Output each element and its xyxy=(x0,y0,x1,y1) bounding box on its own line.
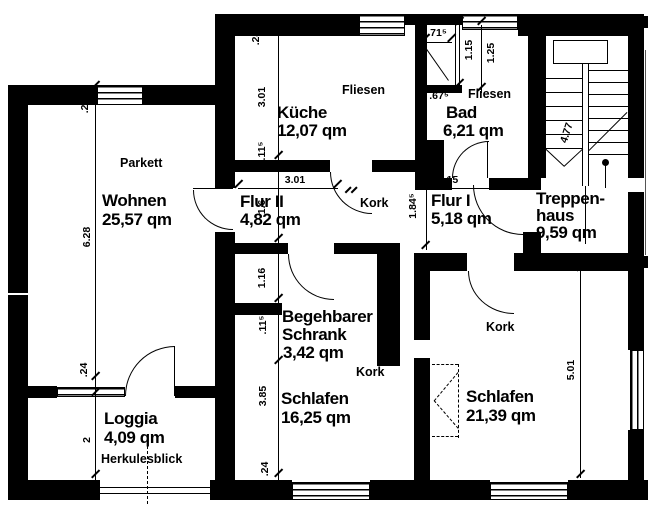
floor-label-schlafen-rechts: Kork xyxy=(486,321,514,334)
wall xyxy=(405,14,462,25)
dim-label-kueche-height: 3.01 xyxy=(257,87,268,107)
wall xyxy=(518,14,630,36)
room-label-treppenhaus-1: Treppen- xyxy=(536,190,605,207)
dim-label-wohnen-height: 6.28 xyxy=(82,227,93,247)
floor-label-flur2: Kork xyxy=(360,197,388,210)
stair-tread xyxy=(541,106,583,107)
area-label-schlafen-rechts: 21,39 qm xyxy=(466,407,536,424)
door-arc-schrank xyxy=(288,254,334,300)
stair-direction-line xyxy=(545,148,565,167)
note-label-herkulesblick: Herkulesblick xyxy=(101,453,182,466)
dashed-detail xyxy=(432,364,458,365)
room-label-schlafen-links: Schlafen xyxy=(281,390,349,407)
wall xyxy=(414,253,467,271)
dim-label-kueche-wall-top: .24 xyxy=(251,31,262,46)
wall xyxy=(235,303,282,315)
room-label-wohnen: Wohnen xyxy=(102,192,166,209)
wall xyxy=(28,386,57,398)
wall xyxy=(215,36,235,85)
dim-label-bad-vorwand: .67⁵ xyxy=(429,91,449,102)
dim-label-flur1-height: 1.84⁵ xyxy=(408,193,419,218)
wall xyxy=(235,243,288,254)
dim-line xyxy=(580,271,581,478)
floor-label-bad: Fliesen xyxy=(468,88,511,101)
floor-plan-canvas: Parkett Wohnen 25,57 qm Küche 12,07 qm F… xyxy=(0,0,648,506)
dashed-detail xyxy=(434,400,459,429)
wall xyxy=(414,358,430,480)
window xyxy=(292,482,370,500)
wall xyxy=(8,480,100,500)
stair-rail-line xyxy=(605,163,606,188)
wall xyxy=(414,271,430,340)
dim-label-schlafen-rechts-height: 5.01 xyxy=(566,360,577,380)
door-arc-wohnen-flur2 xyxy=(193,190,233,230)
window xyxy=(630,350,644,430)
stair-tread xyxy=(589,82,628,83)
wall xyxy=(235,160,330,172)
wall xyxy=(370,480,490,500)
niche-slash xyxy=(425,48,448,81)
floor-label-kueche: Fliesen xyxy=(342,84,385,97)
wall-joint xyxy=(8,293,28,295)
window xyxy=(97,85,143,105)
stair-direction-line xyxy=(564,148,584,167)
area-label-schrank: 3,42 qm xyxy=(283,344,344,361)
door-leaf xyxy=(487,141,488,178)
facade-fragment xyxy=(642,256,648,268)
stair-tread xyxy=(541,78,583,79)
wall xyxy=(514,253,630,271)
stair-tread xyxy=(589,154,628,155)
window xyxy=(490,482,568,500)
wall xyxy=(377,254,400,366)
stair-tread xyxy=(541,92,583,93)
room-label-kueche: Küche xyxy=(277,104,327,121)
room-label-schlafen-rechts: Schlafen xyxy=(466,388,534,405)
facade-line xyxy=(645,50,646,255)
loggia-edge xyxy=(100,487,210,494)
wall xyxy=(334,243,400,254)
area-label-loggia: 4,09 qm xyxy=(104,429,165,446)
wall xyxy=(210,480,292,500)
area-label-wohnen: 25,57 qm xyxy=(102,211,172,228)
stair-tread xyxy=(541,120,583,121)
dim-label-dusche-tiefe: 1.25 xyxy=(486,43,497,63)
room-label-bad: Bad xyxy=(446,104,477,121)
room-label-flur1: Flur I xyxy=(431,192,470,209)
stair-tread xyxy=(589,106,628,107)
dim-label-flur2-width: 3.01 xyxy=(285,175,305,186)
dim-line xyxy=(278,16,279,480)
dim-label-loggia-wall: .24 xyxy=(79,363,90,378)
wall xyxy=(215,232,235,480)
dim-label-dusche-breite: 1.15 xyxy=(464,40,475,60)
room-label-loggia: Loggia xyxy=(104,410,157,427)
area-label-bad: 6,21 qm xyxy=(443,122,504,139)
door-leaf xyxy=(193,188,233,189)
dashed-detail xyxy=(432,436,458,437)
area-label-kueche: 12,07 qm xyxy=(277,122,347,139)
stair-tread xyxy=(589,94,628,95)
wall xyxy=(215,85,235,188)
dim-line xyxy=(481,25,482,93)
door-arc-bad xyxy=(452,141,489,178)
facade-fragment xyxy=(642,16,648,28)
dim-label-schrank-sill: .11⁵ xyxy=(258,316,269,335)
window xyxy=(462,14,518,30)
dim-label-treppe-lauf: 4.77 xyxy=(559,122,575,145)
floor-label-wohnen: Parkett xyxy=(120,157,162,170)
stair-divider xyxy=(582,64,589,186)
dim-line xyxy=(238,188,338,189)
dim-label-flur1-width: 3.15 xyxy=(438,175,458,186)
door-leaf xyxy=(174,346,175,396)
wall xyxy=(415,140,444,178)
dim-label-schlafen-links-height: 3.85 xyxy=(258,386,269,406)
room-label-treppenhaus-2: haus xyxy=(536,207,574,224)
wall xyxy=(628,270,644,350)
dim-line xyxy=(426,182,427,250)
area-label-schlafen-links: 16,25 qm xyxy=(281,409,351,426)
dim-line xyxy=(459,25,460,87)
dim-label-left-wall-top: .24 xyxy=(80,99,91,114)
area-label-treppenhaus: 9,59 qm xyxy=(536,224,597,241)
wall xyxy=(215,14,359,36)
room-label-schrank-2: Schrank xyxy=(282,326,346,343)
dim-label-bottom-wall: .24 xyxy=(260,462,271,477)
dim-line xyxy=(95,87,96,480)
area-label-flur1: 5,18 qm xyxy=(431,210,492,227)
door-arc-loggia xyxy=(125,346,175,396)
door-arc-schlafen-rechts xyxy=(468,271,514,314)
stair-landing xyxy=(553,40,608,64)
dim-label-kueche-sill: .11⁵ xyxy=(257,142,268,161)
dim-label-wohnen-door: 1.6 xyxy=(257,200,268,215)
dim-label-loggia-depth: 2 xyxy=(82,437,93,443)
stair-tread xyxy=(589,70,628,71)
dashed-detail xyxy=(434,372,459,401)
floor-label-schrank: Kork xyxy=(356,366,384,379)
dim-label-bad-niche: .71⁵ xyxy=(427,28,447,39)
wall xyxy=(175,386,215,398)
area-label-flur2: 4,82 qm xyxy=(240,211,301,228)
dim-tick xyxy=(234,179,243,188)
dim-line xyxy=(429,188,521,189)
dim-label-schrank-niche: 1.16 xyxy=(257,268,268,288)
wall xyxy=(372,160,420,172)
window xyxy=(359,14,405,36)
wall xyxy=(628,14,644,178)
room-label-schrank-1: Begehbarer xyxy=(282,308,372,325)
wall xyxy=(628,430,644,500)
